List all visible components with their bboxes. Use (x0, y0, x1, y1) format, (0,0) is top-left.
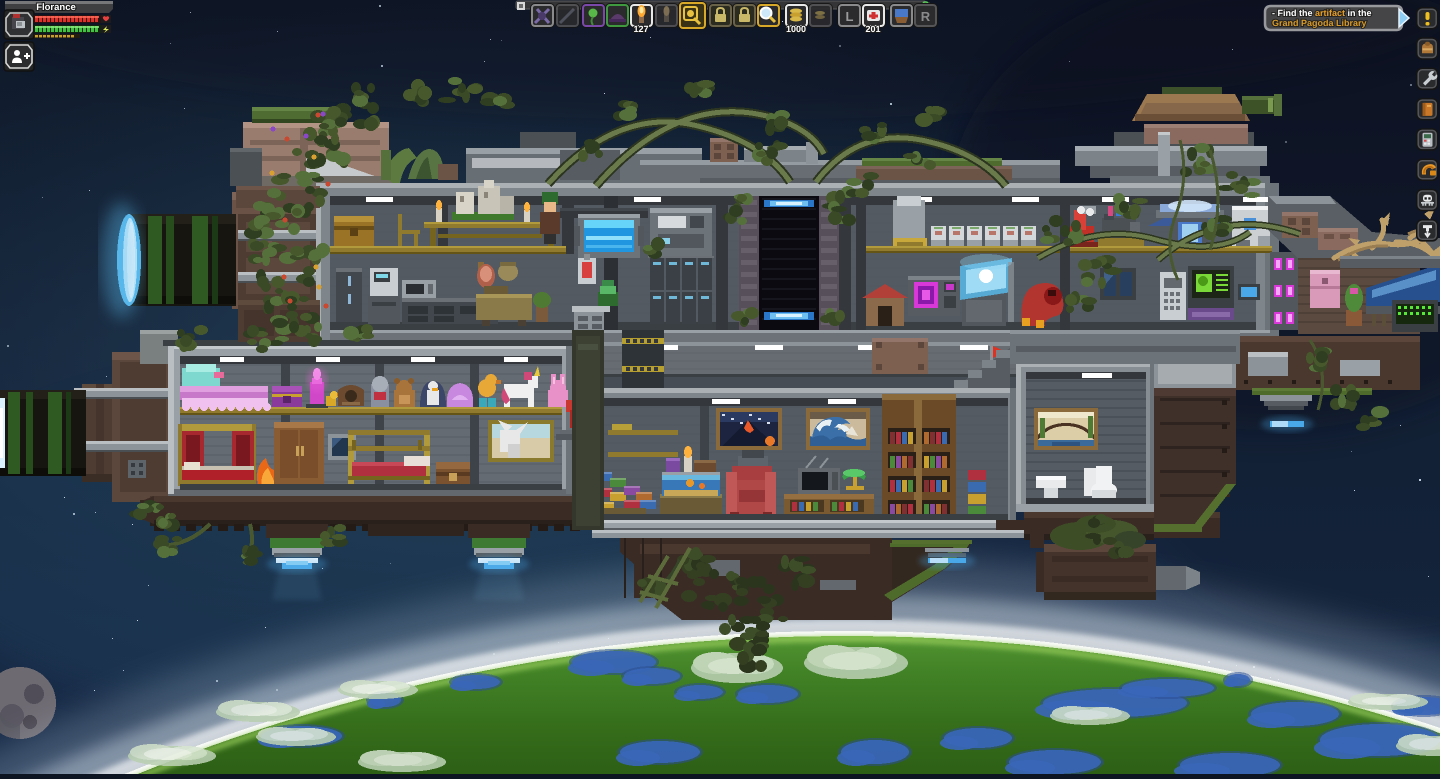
svg-text:Florance: Florance (36, 2, 76, 13)
svg-text:201: 201 (865, 24, 880, 34)
svg-text:L: L (846, 9, 854, 24)
svg-text:127: 127 (633, 24, 648, 34)
svg-text:- Find the artifact in the: - Find the artifact in the (1272, 8, 1372, 18)
svg-text:1000: 1000 (786, 24, 806, 34)
svg-text:R: R (921, 9, 931, 24)
svg-text:Grand Pagoda Library: Grand Pagoda Library (1272, 18, 1367, 28)
